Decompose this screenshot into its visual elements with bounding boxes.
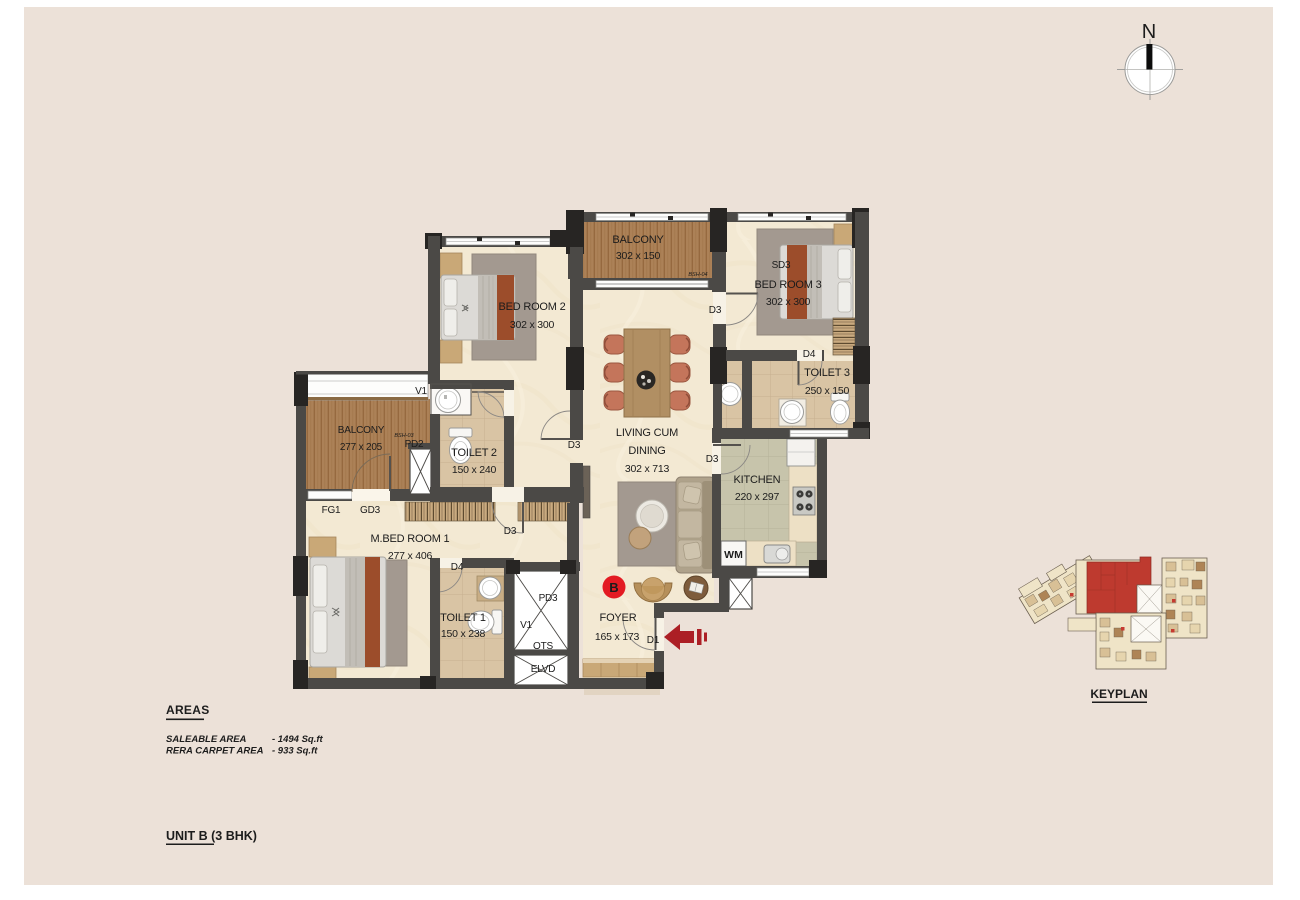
- svg-text:V1: V1: [415, 386, 427, 397]
- svg-text:OTS: OTS: [533, 641, 553, 652]
- svg-text:165 x 173: 165 x 173: [595, 631, 640, 643]
- svg-text:SD3: SD3: [772, 260, 791, 271]
- svg-text:FG1: FG1: [322, 505, 341, 516]
- svg-text:PD3: PD3: [539, 593, 558, 604]
- svg-text:BED ROOM 2: BED ROOM 2: [498, 301, 565, 313]
- svg-text:PD2: PD2: [405, 439, 424, 450]
- svg-text:GD3: GD3: [360, 505, 381, 516]
- svg-text:BALCONY: BALCONY: [338, 425, 385, 436]
- svg-text:BALCONY: BALCONY: [612, 234, 664, 246]
- svg-text:277 x 406: 277 x 406: [388, 550, 433, 562]
- svg-text:150 x 240: 150 x 240: [452, 464, 497, 476]
- svg-text:302 x 150: 302 x 150: [616, 250, 661, 262]
- svg-text:302 x 713: 302 x 713: [625, 463, 670, 475]
- svg-text:M.BED ROOM 1: M.BED ROOM 1: [371, 533, 450, 545]
- svg-text:V1: V1: [520, 620, 532, 631]
- svg-text:KITCHEN: KITCHEN: [734, 474, 781, 486]
- svg-text:B: B: [609, 580, 618, 595]
- svg-text:D3: D3: [504, 526, 517, 537]
- svg-text:FOYER: FOYER: [600, 612, 637, 624]
- svg-text:D3: D3: [709, 305, 722, 316]
- svg-text:TOILET 2: TOILET 2: [451, 447, 497, 459]
- svg-text:SALEABLE AREA: SALEABLE AREA: [166, 734, 247, 745]
- svg-text:ELVD: ELVD: [531, 664, 556, 675]
- svg-text:DINING: DINING: [628, 445, 665, 457]
- svg-text:KEYPLAN: KEYPLAN: [1090, 687, 1147, 701]
- svg-text:302 x 300: 302 x 300: [766, 296, 811, 308]
- svg-text:220 x 297: 220 x 297: [735, 491, 780, 503]
- svg-text:BED ROOM 3: BED ROOM 3: [754, 279, 821, 291]
- svg-text:LIVING CUM: LIVING CUM: [616, 427, 678, 439]
- svg-text:D1: D1: [647, 635, 660, 646]
- svg-text:BSH-04: BSH-04: [688, 272, 707, 278]
- svg-text:- 1494 Sq.ft: - 1494 Sq.ft: [272, 734, 324, 745]
- svg-text:150 x 238: 150 x 238: [441, 628, 486, 640]
- svg-text:WM: WM: [724, 549, 743, 561]
- svg-text:UNIT B (3 BHK): UNIT B (3 BHK): [166, 829, 257, 843]
- svg-text:D4: D4: [451, 562, 464, 573]
- svg-text:302 x 300: 302 x 300: [510, 319, 555, 331]
- svg-text:TOILET 3: TOILET 3: [804, 367, 850, 379]
- svg-text:RERA CARPET AREA: RERA CARPET AREA: [166, 746, 264, 757]
- svg-text:AREAS: AREAS: [166, 703, 210, 717]
- svg-text:D3: D3: [568, 440, 581, 451]
- svg-text:277 x 205: 277 x 205: [340, 442, 383, 453]
- svg-text:N: N: [1142, 21, 1156, 43]
- svg-text:D3: D3: [706, 454, 719, 465]
- svg-text:250 x 150: 250 x 150: [805, 385, 850, 397]
- svg-text:TOILET 1: TOILET 1: [440, 612, 486, 624]
- svg-text:- 933 Sq.ft: - 933 Sq.ft: [272, 746, 318, 757]
- svg-text:D4: D4: [803, 349, 816, 360]
